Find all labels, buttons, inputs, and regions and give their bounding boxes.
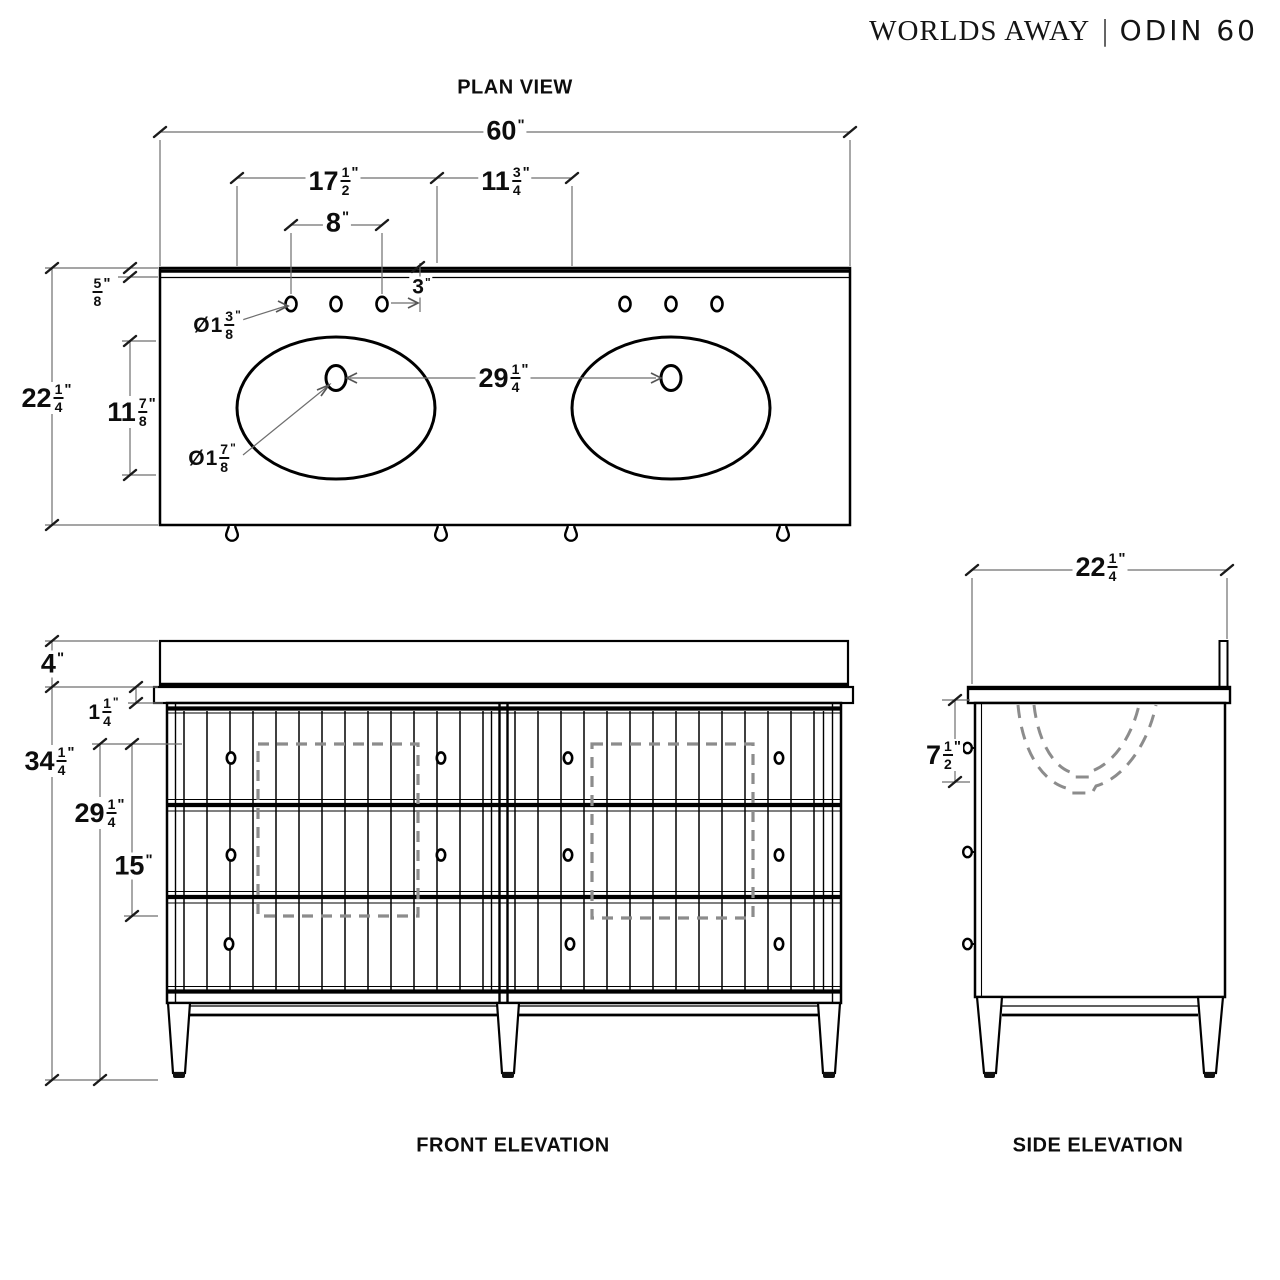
dim-faucet-hole-diameter: Ø138": [191, 309, 243, 341]
dim-hole-setback: 3": [409, 277, 432, 298]
dim-bowl-depth: 712": [923, 739, 963, 771]
side-elevation-drawing: [942, 565, 1233, 1078]
drawing-sheet: WORLDS AWAY | ODIN 60 PLAN VIEW FRONT EL…: [0, 0, 1280, 1280]
plan-drain-right: [661, 366, 681, 391]
brand-title: WORLDS AWAY | ODIN 60: [869, 14, 1258, 48]
technical-drawing: [0, 0, 1280, 1280]
dim-overall-width: 60": [483, 118, 526, 145]
dim-backsplash-height: 4": [38, 651, 66, 678]
model-name: ODIN 60: [1120, 14, 1258, 47]
dim-clearance-height: 2914": [72, 797, 127, 829]
plan-drain-left: [326, 366, 346, 391]
front-backsplash: [160, 641, 848, 687]
dim-side-depth: 2214": [1073, 551, 1128, 583]
dim-faucet-span-left: 1712": [306, 165, 361, 197]
dim-cutout-height: 15": [111, 853, 154, 880]
front-elevation-caption: FRONT ELEVATION: [416, 1135, 609, 1158]
plan-view-drawing: [45, 127, 856, 541]
front-elevation-drawing: [45, 636, 853, 1085]
front-cabinet-body: [167, 703, 841, 1003]
dim-backsplash-depth: 58": [88, 276, 113, 308]
side-cabinet-body: [975, 703, 1225, 997]
dim-drain-hole-diameter: Ø178": [186, 442, 238, 474]
side-backsplash: [1220, 641, 1228, 687]
plan-knobs: [226, 526, 789, 541]
plan-view-caption: PLAN VIEW: [457, 77, 573, 100]
side-legs: [977, 997, 1223, 1078]
side-elevation-caption: SIDE ELEVATION: [1013, 1135, 1184, 1158]
brand-separator: |: [1100, 14, 1109, 47]
dim-faucet-spread: 8": [323, 210, 351, 237]
dim-sink-setback: 1178": [104, 396, 157, 428]
dim-counter-thickness: 114": [85, 696, 120, 728]
front-legs: [168, 1003, 840, 1078]
plan-countertop-outline: [160, 268, 850, 525]
front-counter-slab: [154, 687, 853, 703]
dim-faucet-span-right: 1134": [478, 165, 531, 197]
side-knobs: [963, 743, 975, 949]
dim-counter-depth: 2214": [19, 382, 74, 414]
dim-overall-height: 3414": [22, 745, 77, 777]
dim-sink-spacing: 2914": [476, 362, 531, 394]
brand-name: WORLDS AWAY: [869, 15, 1090, 48]
